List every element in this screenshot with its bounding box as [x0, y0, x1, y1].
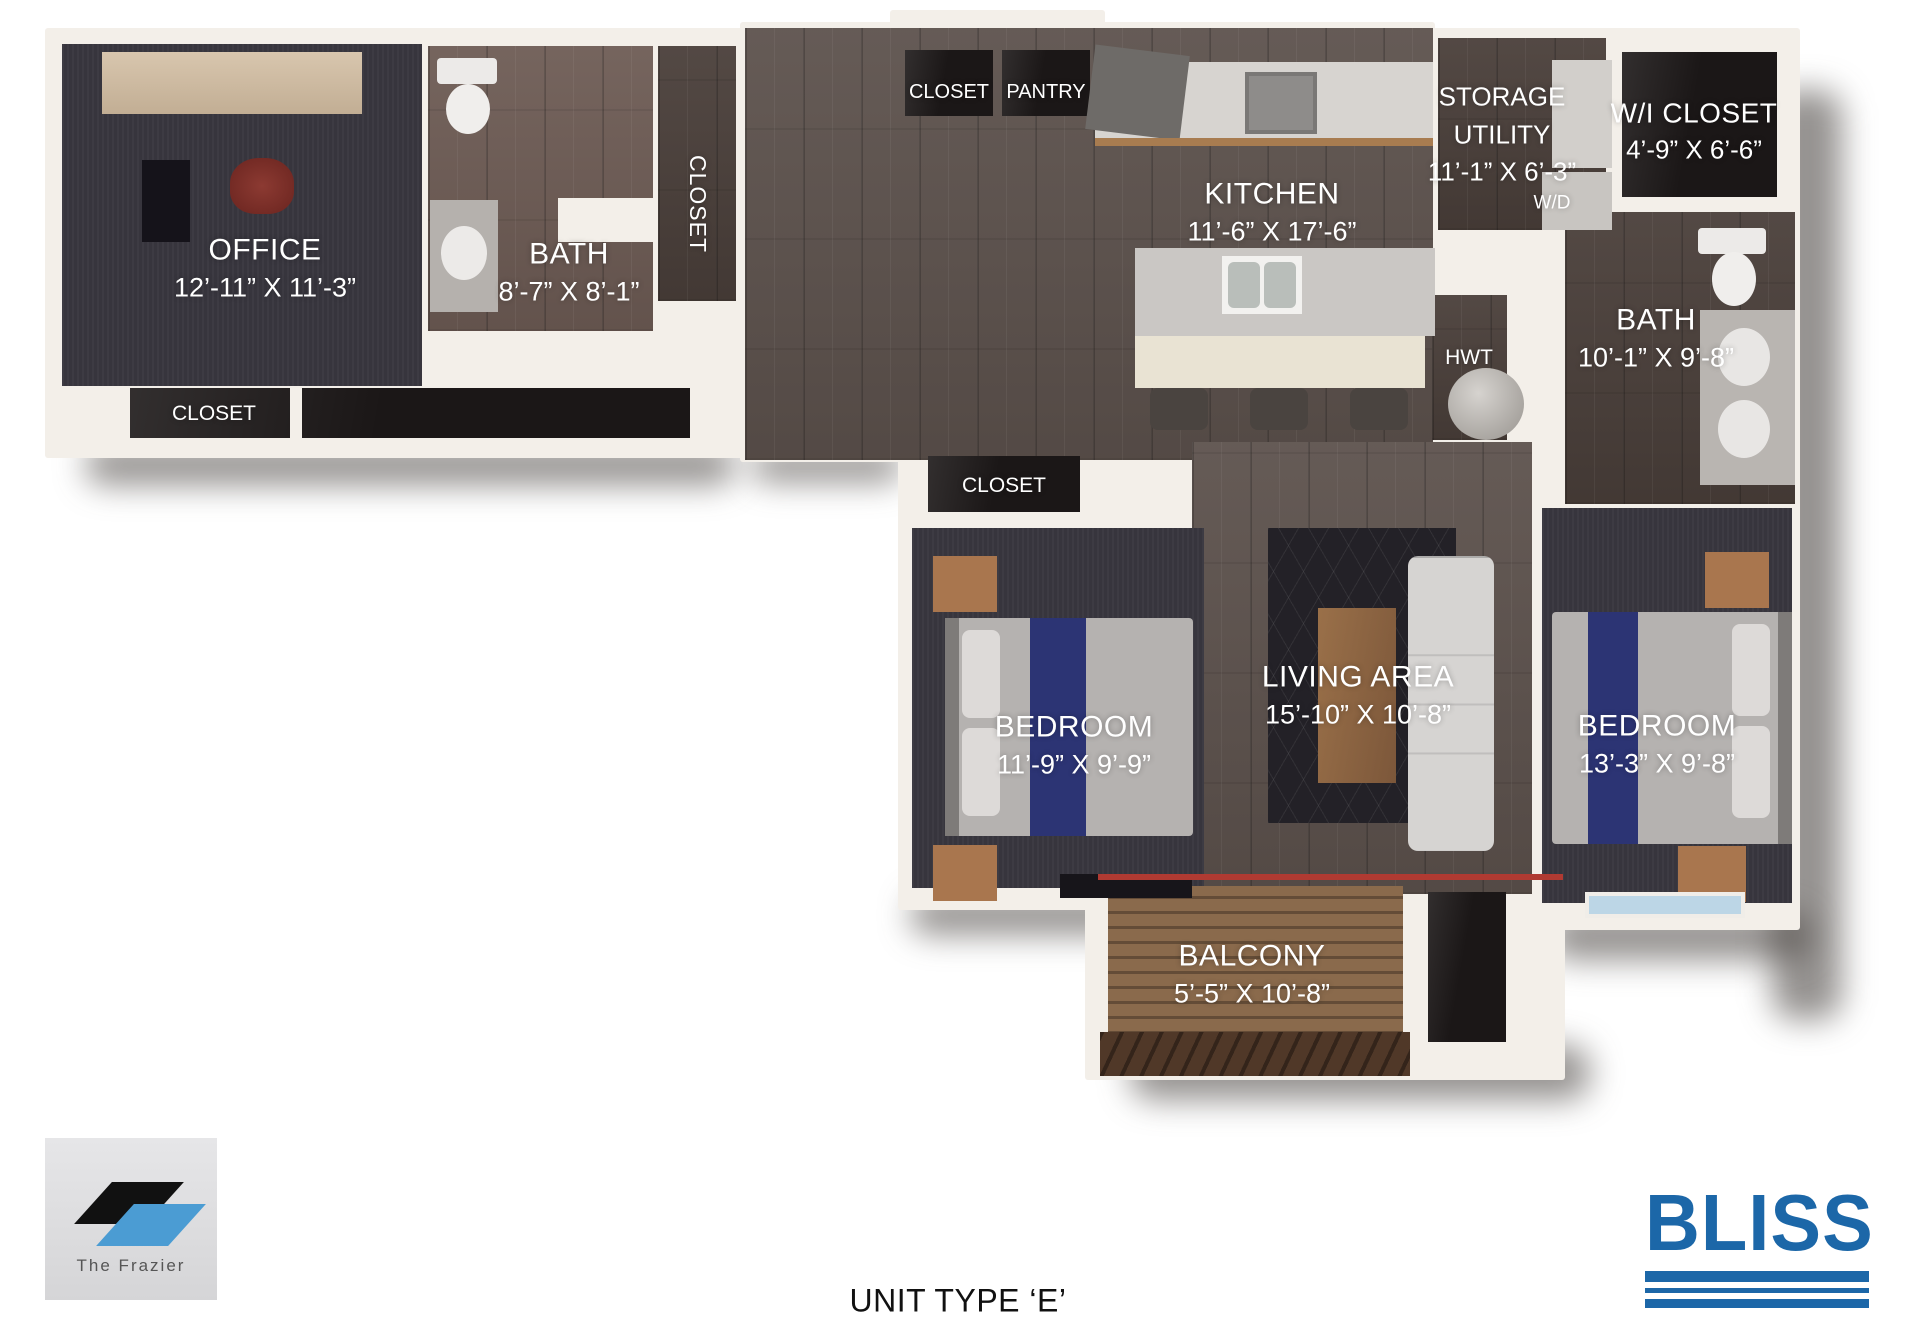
floor-plan-canvas: OFFICE 12’-11” X 11’-3” CLOSET BATH 8’-7… [0, 0, 1920, 1326]
living-label: LIVING AREA 15’-10” X 10’-8” [1262, 657, 1454, 732]
balcony-door-interior [1428, 892, 1506, 1042]
storage-utility-name-2: UTILITY [1428, 116, 1576, 154]
kitchen-sink-basin-left [1228, 262, 1260, 308]
bedroom2-pillow-1 [1732, 624, 1770, 716]
hall-closet-label: CLOSET [683, 155, 713, 253]
bliss-logo: BLISS [1645, 1186, 1869, 1308]
bath2-label: BATH 10’-1” X 9’-8” [1578, 300, 1734, 375]
bedroom2-nightstand [1705, 552, 1769, 608]
entry-closet-label: CLOSET [909, 79, 989, 105]
bedroom2-window [1585, 892, 1745, 918]
office-name: OFFICE [174, 230, 356, 270]
frazier-logo: The Frazier [45, 1138, 217, 1300]
bath2-sink-2 [1718, 400, 1770, 458]
bedroom1-pillow-1 [962, 630, 1000, 718]
kitchen-name: KITCHEN [1187, 174, 1356, 214]
balcony-dims: 5’-5” X 10’-8” [1174, 976, 1330, 1012]
bath1-toilet-tank [437, 58, 497, 84]
bliss-logo-bar-thick [1645, 1271, 1869, 1282]
bar-stool-1 [1150, 388, 1208, 430]
bath1-toilet-bowl [446, 84, 490, 134]
bath1-label: BATH 8’-7” X 8’-1” [498, 234, 639, 309]
office-dims: 12’-11” X 11’-3” [174, 270, 356, 306]
bar-stool-3 [1350, 388, 1408, 430]
office-desk [102, 52, 362, 114]
bedroom2-pillow-2 [1732, 726, 1770, 818]
kitchen-seating-counter [1135, 336, 1425, 388]
bedroom1-dims: 11’-9” X 9’-9” [995, 747, 1154, 783]
kitchen-stove [1245, 72, 1317, 134]
bath2-toilet-tank [1698, 228, 1766, 254]
balcony-lower-deck [1100, 1032, 1410, 1076]
wi-closet-name: W/I CLOSET [1611, 95, 1778, 132]
bath1-dims: 8’-7” X 8’-1” [498, 274, 639, 310]
kitchen-counter-edge [1095, 138, 1433, 146]
office-chair [230, 158, 294, 214]
kitchen-range-hood [1085, 45, 1190, 141]
bedroom2-headboard [1778, 612, 1792, 844]
bar-stool-2 [1250, 388, 1308, 430]
balcony-threshold-line [1098, 874, 1563, 880]
bedroom1-label: BEDROOM 11’-9” X 9’-9” [995, 707, 1154, 782]
bedroom1-closet-label: CLOSET [962, 472, 1046, 500]
office-closet-label: CLOSET [172, 400, 256, 428]
bath1-name: BATH [498, 234, 639, 274]
bliss-logo-text: BLISS [1645, 1184, 1869, 1264]
frazier-logo-text: The Frazier [77, 1256, 186, 1276]
office-closet-divider [290, 388, 302, 438]
bedroom1-nightstand-top [933, 556, 997, 612]
unit-type-label: UNIT TYPE ‘E’ [850, 1283, 1067, 1320]
hwt-tank [1448, 368, 1524, 440]
bedroom1-nightstand-bottom [933, 845, 997, 901]
storage-utility-dims: 11’-1” X 6’-3” [1428, 154, 1576, 192]
kitchen-sink-basin-right [1264, 262, 1296, 308]
bath2-toilet-bowl [1712, 252, 1756, 306]
bedroom1-headboard [945, 618, 959, 836]
bedroom1-name: BEDROOM [995, 707, 1154, 747]
wi-closet-label: W/I CLOSET 4’-9” X 6’-6” [1611, 95, 1778, 166]
storage-utility-label: STORAGE UTILITY 11’-1” X 6’-3” [1428, 78, 1576, 191]
bedroom2-dims: 13’-3” X 9’-8” [1578, 746, 1737, 782]
bath2-dims: 10’-1” X 9’-8” [1578, 340, 1734, 376]
bliss-logo-bar-thin [1645, 1288, 1869, 1293]
bedroom2-name: BEDROOM [1578, 706, 1737, 746]
balcony-label: BALCONY 5’-5” X 10’-8” [1174, 936, 1330, 1011]
washer-dryer-label: W/D [1534, 190, 1571, 215]
living-dims: 15’-10” X 10’-8” [1262, 697, 1454, 733]
office-label: OFFICE 12’-11” X 11’-3” [174, 230, 356, 305]
bath1-sink [441, 226, 487, 280]
balcony-name: BALCONY [1174, 936, 1330, 976]
kitchen-label: KITCHEN 11’-6” X 17’-6” [1187, 174, 1356, 249]
wi-closet-dims: 4’-9” X 6’-6” [1611, 132, 1778, 166]
living-name: LIVING AREA [1262, 657, 1454, 697]
bedroom2-label: BEDROOM 13’-3” X 9’-8” [1578, 706, 1737, 781]
bath2-name: BATH [1578, 300, 1734, 340]
storage-utility-name-1: STORAGE [1428, 78, 1576, 116]
kitchen-dims: 11’-6” X 17’-6” [1187, 214, 1356, 250]
hwt-label: HWT [1445, 344, 1493, 372]
pantry-label: PANTRY [1006, 79, 1085, 105]
bliss-logo-bar-bottom [1645, 1299, 1869, 1308]
